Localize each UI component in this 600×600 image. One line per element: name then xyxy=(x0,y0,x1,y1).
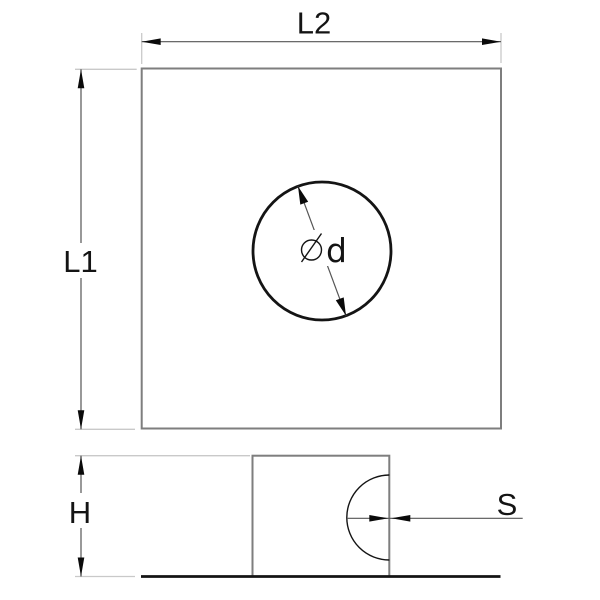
l2-left-arrowhead-icon xyxy=(142,38,161,45)
diameter-label: d xyxy=(326,231,347,270)
plate-outline-side-view xyxy=(253,456,390,577)
l1-bottom-arrowhead-icon xyxy=(78,410,85,429)
l2-right-arrowhead-icon xyxy=(482,38,501,45)
h-bottom-arrowhead-icon xyxy=(78,558,85,577)
drawing-stage: L2 L1 d H xyxy=(0,0,600,600)
l2-dimension: L2 xyxy=(142,6,501,65)
l1-dimension: L1 xyxy=(63,69,136,429)
s-label: S xyxy=(497,487,518,522)
h-dimension: H xyxy=(69,456,250,577)
l1-label: L1 xyxy=(63,244,97,279)
side-view xyxy=(141,456,501,577)
s-right-arrowhead-icon xyxy=(391,515,410,522)
h-label: H xyxy=(69,495,91,530)
h-top-arrowhead-icon xyxy=(78,456,85,475)
technical-drawing-canvas: L2 L1 d H xyxy=(0,0,600,600)
l1-top-arrowhead-icon xyxy=(78,69,85,88)
l2-label: L2 xyxy=(297,6,331,41)
